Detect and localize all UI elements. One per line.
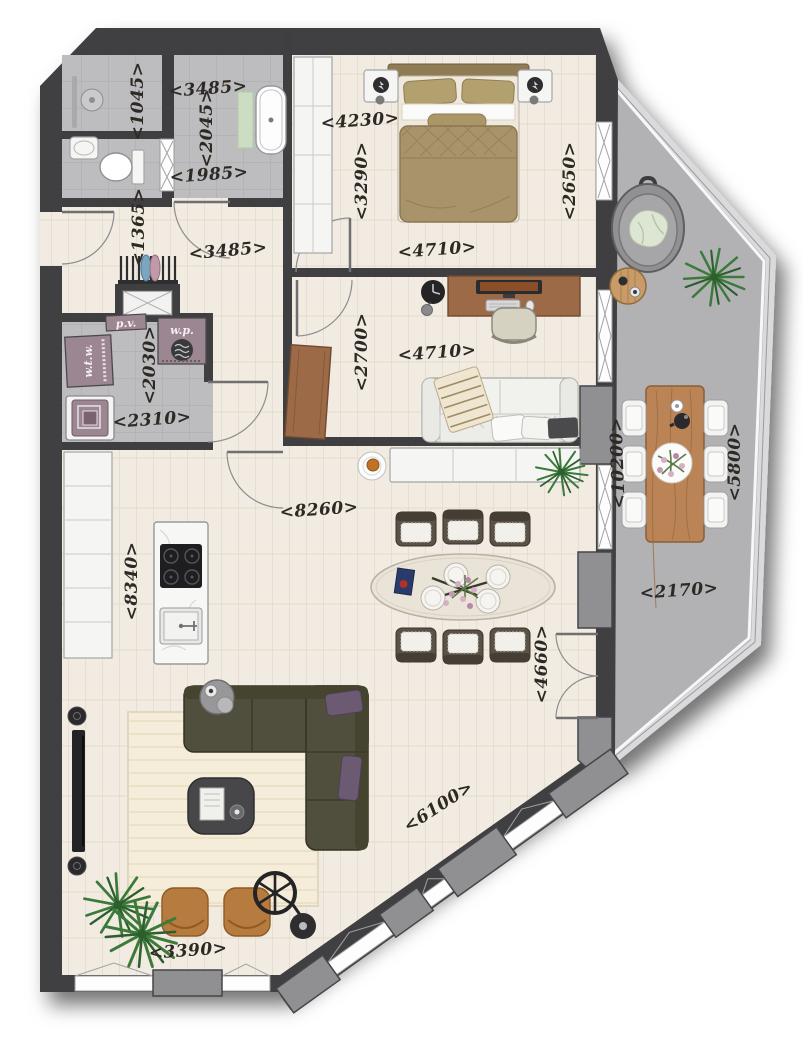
- dim-bath-depth: <2045>: [197, 89, 217, 168]
- cooktop: [160, 544, 202, 588]
- dim-kitchen-len: <8340>: [122, 542, 142, 621]
- side-table: [200, 680, 234, 714]
- pouf: [162, 888, 208, 936]
- bedroom-terrace-door: [596, 122, 612, 200]
- coffee-table: [188, 778, 254, 834]
- office-terrace-window: [598, 290, 612, 382]
- label-wp: w.p.: [170, 324, 194, 337]
- dining-chair: [443, 630, 483, 664]
- bed: [388, 64, 529, 222]
- dining-set: [371, 510, 555, 664]
- gray-pillow: [547, 417, 578, 439]
- dining-chair: [490, 512, 530, 546]
- desk-chair: [492, 308, 536, 343]
- kitchen-counter: [64, 452, 112, 658]
- dim-living-right: <4660>: [532, 625, 552, 704]
- pouf: [224, 888, 270, 936]
- pet-bowl: [367, 459, 379, 471]
- magazine: [394, 568, 414, 595]
- floor-plan: <1045> <3485> <2045> <1985> <4230> <3290…: [0, 0, 803, 1050]
- chair-cushion: [630, 211, 668, 247]
- console-table: [285, 345, 331, 440]
- bath-mat: [238, 92, 253, 148]
- dim-office-depth: <2700>: [352, 313, 372, 392]
- dining-chair: [443, 510, 483, 544]
- speaker: [68, 857, 86, 875]
- dim-shower: <1045>: [128, 62, 148, 141]
- dim-util-depth: <2030>: [140, 326, 160, 405]
- wp-fan-icon: [171, 339, 193, 361]
- nightstand-left: [364, 70, 398, 105]
- purple-pillow: [325, 690, 364, 717]
- dim-terrace-right: <5800>: [725, 423, 745, 502]
- kitchen-island: [154, 522, 208, 664]
- dim-bed-left: <3290>: [352, 142, 372, 221]
- book: [200, 788, 224, 820]
- dining-chair: [490, 628, 530, 662]
- sideboard: [390, 448, 580, 482]
- dim-hall-entry: <1365>: [129, 188, 149, 267]
- dining-chair: [396, 628, 436, 662]
- shower-rail: [72, 76, 77, 128]
- toilet: [100, 150, 144, 184]
- dim-bed-right: <2650>: [560, 142, 580, 221]
- nightstand-right: [518, 70, 552, 105]
- bathtub: [256, 86, 286, 154]
- floor-plan-canvas: <1045> <3485> <2045> <1985> <4230> <3290…: [0, 0, 803, 1050]
- wall-pier: [578, 552, 612, 628]
- entrance-opening: [40, 212, 62, 266]
- label-pv: p.v.: [115, 316, 136, 330]
- wardrobe: [294, 57, 332, 253]
- label-wtw: w.t.w.: [82, 344, 95, 377]
- speaker: [68, 707, 86, 725]
- purple-pillow: [338, 755, 362, 801]
- pet-bowl-mat: [358, 452, 386, 480]
- dim-terrace-len: <10200>: [606, 417, 629, 509]
- kitchen-sink: [160, 608, 202, 644]
- dining-chair: [396, 512, 436, 546]
- washing-machine: [66, 396, 114, 440]
- dining-table: [371, 554, 555, 620]
- terrace-side-table: [610, 268, 646, 304]
- coat-pink: [150, 255, 160, 281]
